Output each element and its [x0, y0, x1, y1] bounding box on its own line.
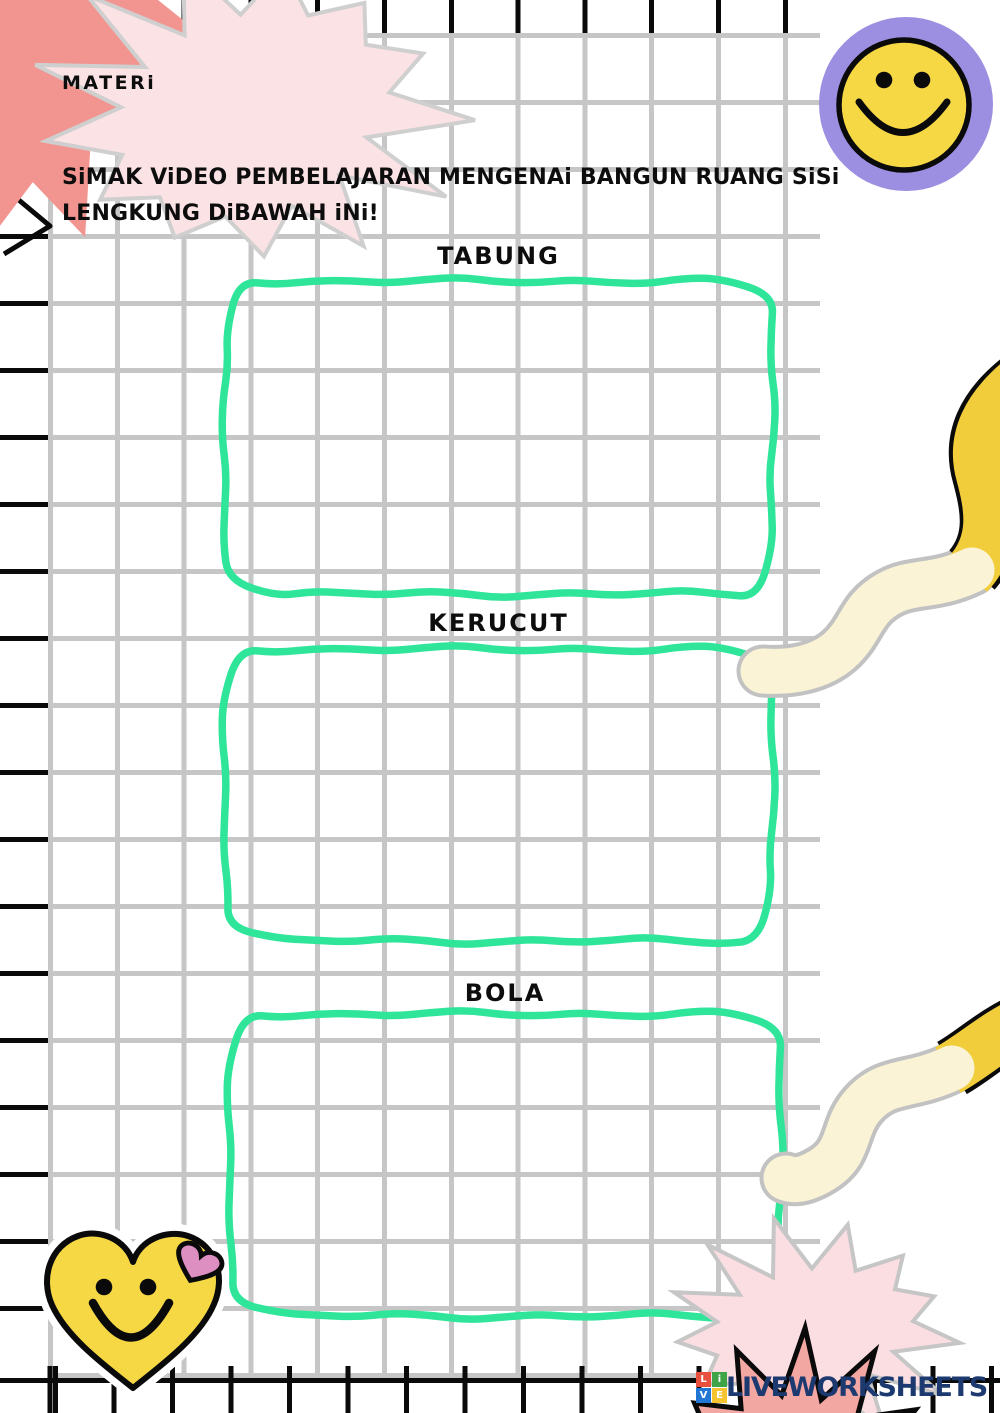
video-area-tabung[interactable] — [225, 281, 772, 594]
liveworksheets-logo-icon: L i V E — [696, 1372, 727, 1403]
worksheet-page: MATERi SiMAK ViDEO PEMBELAJARAN MENGENAi… — [0, 0, 1000, 1413]
ribbon-bottom-yellow-outline — [952, 1022, 1000, 1068]
liveworksheets-footer[interactable]: L i V E LIVEWORKSHEETS — [696, 1372, 987, 1403]
ribbon-top-yellow — [968, 375, 1000, 574]
liveworksheets-brand-text: LIVEWORKSHEETS — [726, 1372, 987, 1403]
smiley-face-icon — [839, 40, 969, 170]
section-title-bola: BOLA — [230, 979, 780, 1007]
logo-letter-i: i — [712, 1372, 727, 1387]
outer-grid-left-ticks — [0, 33, 48, 1366]
logo-letter-v: V — [696, 1388, 711, 1403]
section-title-tabung: TABUNG — [225, 242, 772, 270]
smiley-mouth — [859, 102, 947, 133]
instruction-text: SiMAK ViDEO PEMBELAJARAN MENGENAi BANGUN… — [62, 160, 840, 232]
smiley-sticker — [819, 17, 993, 191]
video-area-kerucut[interactable] — [225, 649, 772, 941]
section-title-kerucut: KERUCUT — [225, 609, 772, 637]
video-area-bola[interactable] — [230, 1014, 780, 1316]
outer-grid-top-ticks — [48, 0, 820, 33]
materi-badge-label: MATERi — [62, 72, 156, 94]
smiley-purple-ring — [819, 17, 993, 191]
instruction-line-1: SiMAK ViDEO PEMBELAJARAN MENGENAi BANGUN… — [62, 160, 840, 196]
ribbon-bottom-yellow — [948, 1020, 1000, 1070]
smiley-right-eye — [914, 72, 931, 89]
instruction-line-2: LENGKUNG DiBAWAH iNi! — [62, 196, 840, 232]
logo-letter-e: E — [712, 1388, 727, 1403]
smiley-left-eye — [876, 72, 893, 89]
ribbon-top-yellow-outline — [972, 378, 1000, 570]
logo-letter-l: L — [696, 1372, 711, 1387]
